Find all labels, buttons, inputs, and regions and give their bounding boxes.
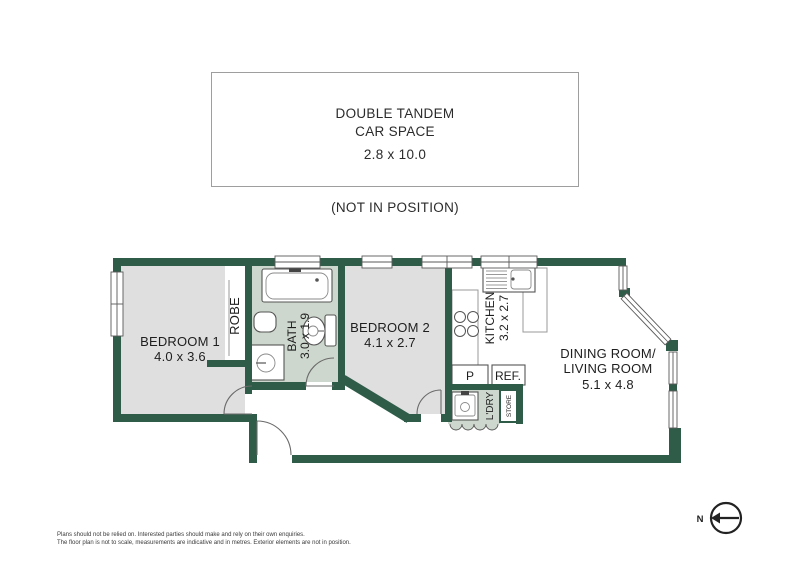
bedroom2-label: BEDROOM 2: [350, 320, 430, 335]
bedroom1-label: BEDROOM 1: [140, 334, 220, 349]
bath-label: BATH: [285, 320, 299, 351]
disclaimer-text: Plans should not be relied on. Intereste…: [57, 532, 477, 547]
entry-door: [257, 421, 291, 455]
bedroom2-dimensions: 4.1 x 2.7: [364, 335, 416, 350]
store-label: STORE: [506, 394, 513, 417]
bath-basin-icon: [254, 312, 276, 332]
dining-living-dimensions: 5.1 x 4.8: [582, 377, 634, 392]
kitchen-label: KITCHEN: [483, 292, 497, 345]
bedroom1-dimensions: 4.0 x 3.6: [154, 349, 206, 364]
fridge-label: REF.: [495, 369, 521, 383]
dining-living-label-line2: LIVING ROOM: [564, 361, 653, 376]
kitchen-dimensions: 3.2 x 2.7: [497, 295, 511, 341]
floor-plan-drawing: BEDROOM 1 4.0 x 3.6 ROBE BATH 3.0 x 1.9 …: [0, 0, 800, 565]
laundry-label: L'DRY: [485, 391, 496, 420]
disclaimer-line2: The floor plan is not to scale, measurem…: [57, 540, 477, 548]
laundry-tub-icon: [452, 391, 478, 420]
robe-label: ROBE: [227, 297, 242, 335]
pantry-label: P: [466, 369, 474, 383]
laundry-folding-door: [450, 424, 498, 430]
disclaimer-line1: Plans should not be relied on. Intereste…: [57, 532, 477, 540]
bath-dimensions: 3.0 x 1.9: [298, 313, 312, 359]
north-label: N: [697, 514, 704, 525]
kitchen-sink-icon: [483, 267, 535, 292]
dining-living-label-line1: DINING ROOM/: [560, 346, 656, 361]
north-arrow-icon: N: [692, 496, 752, 542]
bathtub-icon: [262, 267, 332, 302]
vanity-sink-icon: [250, 345, 284, 380]
floor-plan-page: DOUBLE TANDEM CAR SPACE 2.8 x 10.0 (NOT …: [0, 0, 800, 565]
